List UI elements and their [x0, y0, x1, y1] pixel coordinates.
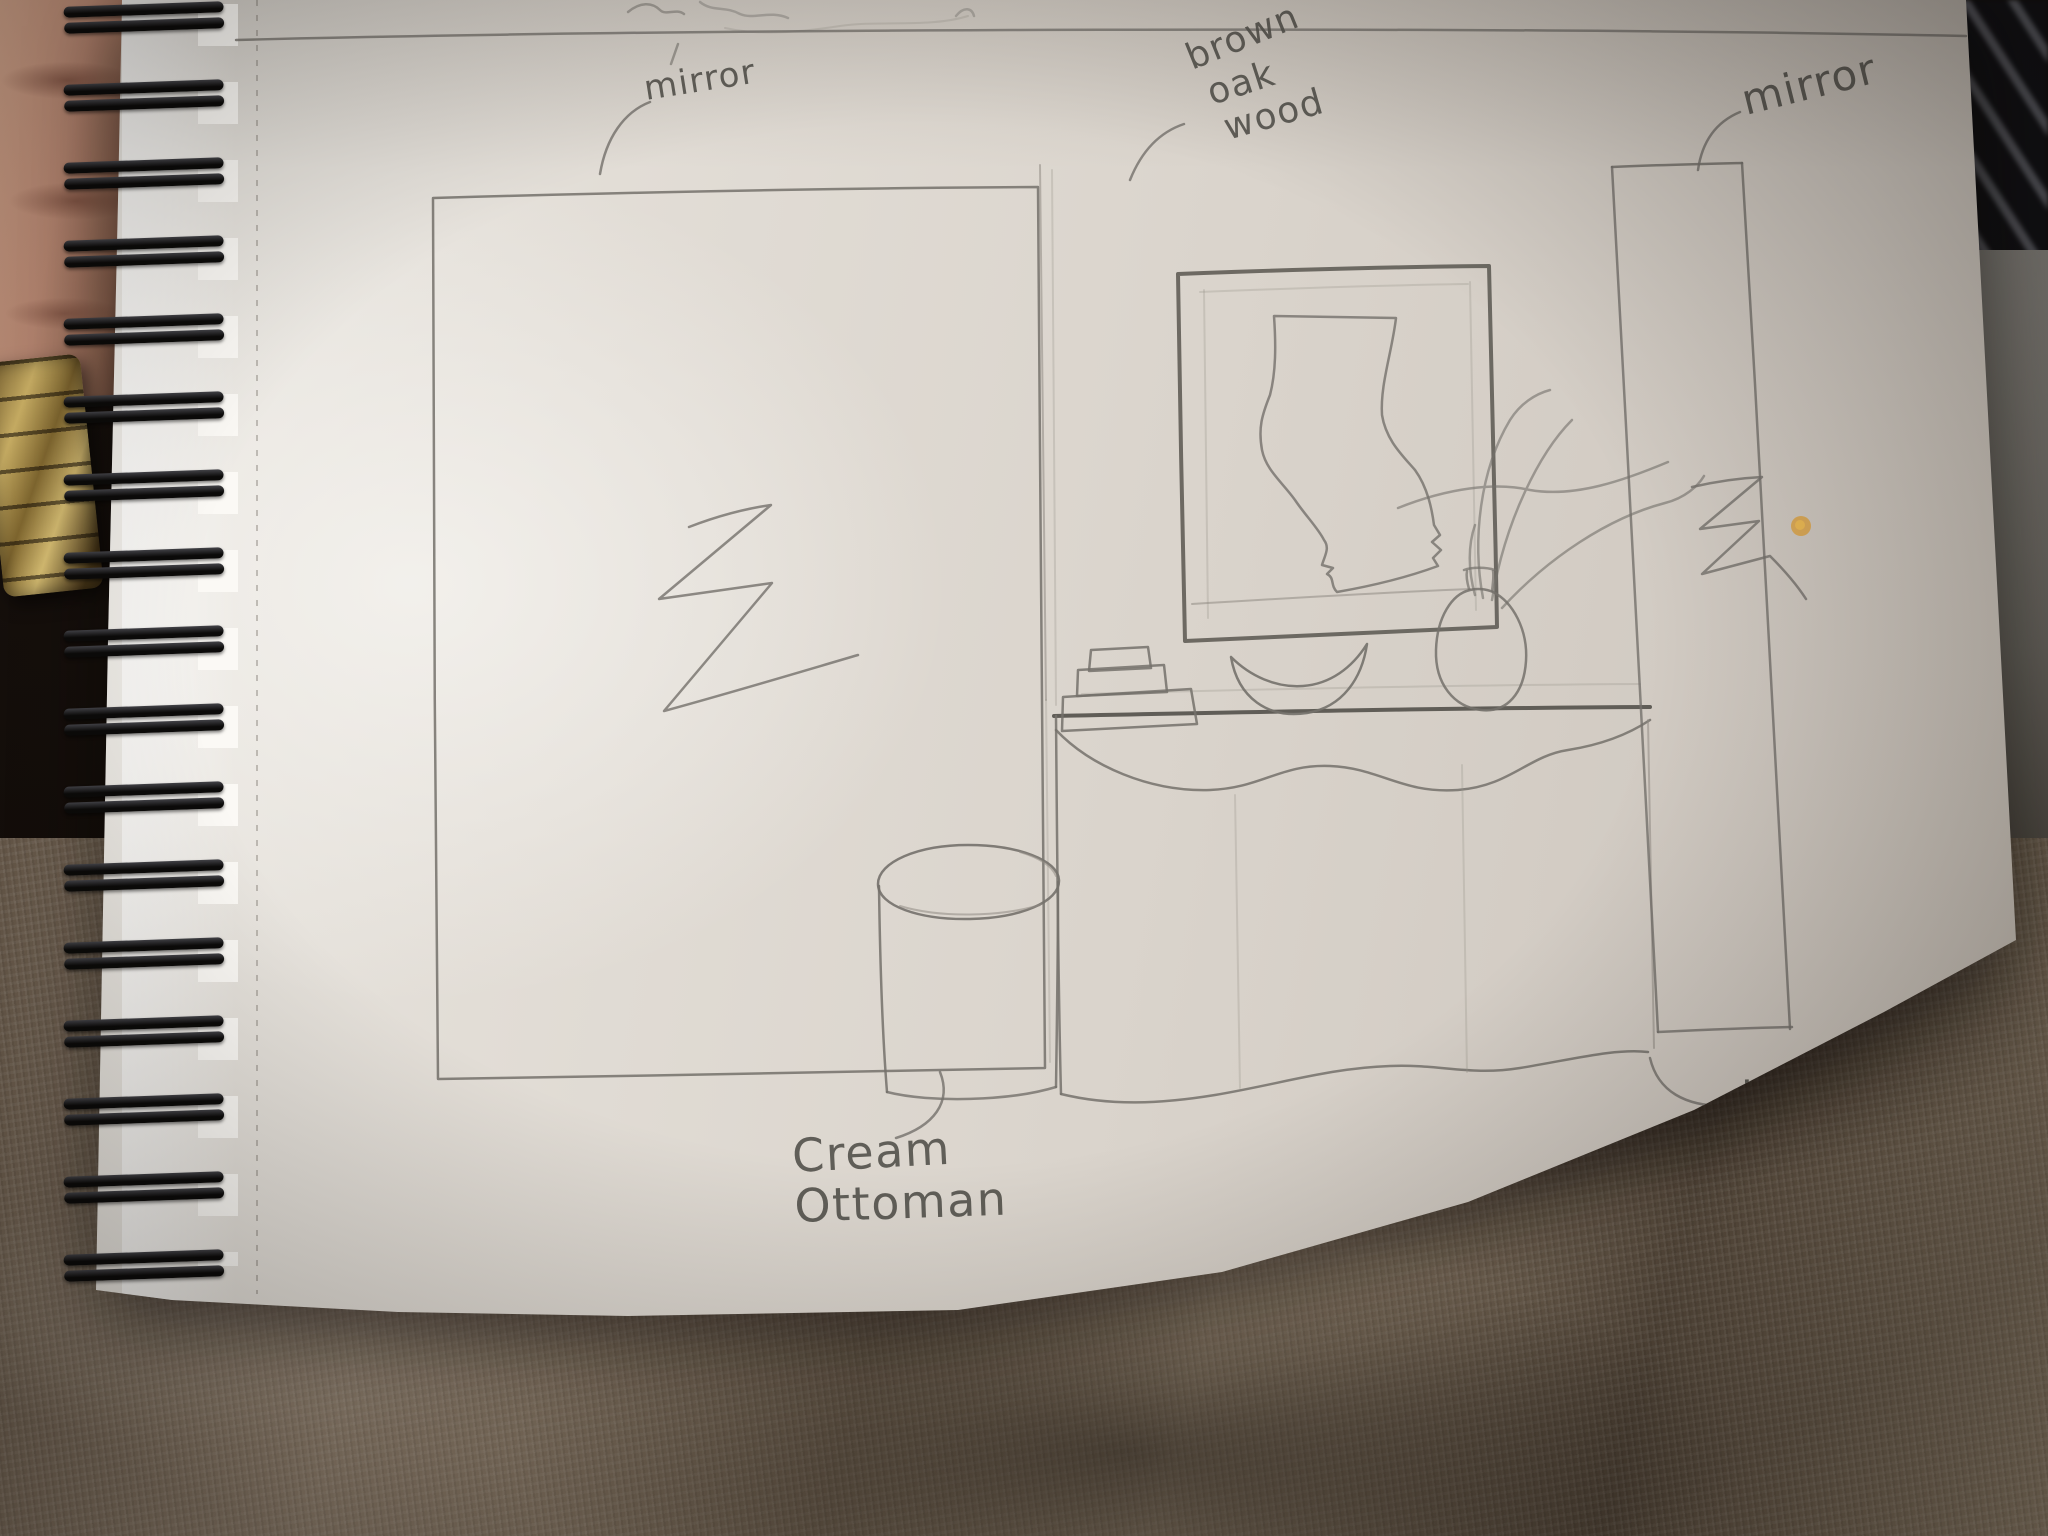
coil [63, 1249, 224, 1289]
coil [63, 625, 224, 665]
label-mirror-right: mirror [1737, 44, 1882, 125]
cutoff-handwriting [628, 2, 974, 32]
vase-branches-sketch [1398, 390, 1704, 608]
label-console-line3: console [1747, 1161, 1919, 1213]
coil [63, 391, 224, 431]
labels: mirror brown oak wood mirror Cream Ottom… [641, 0, 1979, 1233]
label-mirror-left: mirror [641, 52, 759, 109]
sketchbook-page-wrap: mirror brown oak wood mirror Cream Ottom… [0, 0, 2048, 1536]
coil [63, 235, 224, 275]
sketchbook-page: mirror brown oak wood mirror Cream Ottom… [0, 0, 2048, 1536]
coil [63, 1171, 224, 1211]
coil [63, 157, 224, 197]
coil [63, 1015, 224, 1055]
right-mirror-sketch [1612, 163, 1806, 1032]
coil [63, 781, 224, 821]
coil [63, 469, 224, 509]
wall-top-line [236, 30, 1966, 64]
console-sketch [1054, 684, 1654, 1102]
label-ottoman-line2: Ottoman [793, 1172, 1008, 1233]
coil [63, 547, 224, 587]
coil [63, 79, 224, 119]
pencil-sketch: mirror brown oak wood mirror Cream Ottom… [0, 0, 2048, 1536]
artwork-frame-sketch [1178, 266, 1497, 641]
label-console-line1: dark brown [1726, 1064, 1980, 1122]
coil [63, 859, 224, 899]
label-console-line2: wooden [1742, 1113, 1917, 1168]
spiral-binding [0, 0, 240, 1300]
photo-scene: mirror brown oak wood mirror Cream Ottom… [0, 0, 2048, 1536]
abstract-art-shape [1260, 316, 1441, 592]
coil [63, 313, 224, 353]
leader-lines [600, 102, 1740, 1138]
coil [63, 937, 224, 977]
ottoman-sketch [878, 845, 1059, 1099]
stain-mark [1791, 516, 1811, 536]
bowl-sketch [1231, 644, 1367, 714]
shine-squiggle-right [1692, 477, 1806, 599]
books-sketch [1062, 647, 1197, 731]
coil [63, 703, 224, 743]
coil [63, 1093, 224, 1133]
left-mirror-sketch [433, 187, 1045, 1079]
shine-squiggle-left [659, 505, 858, 711]
coil [63, 1, 224, 41]
